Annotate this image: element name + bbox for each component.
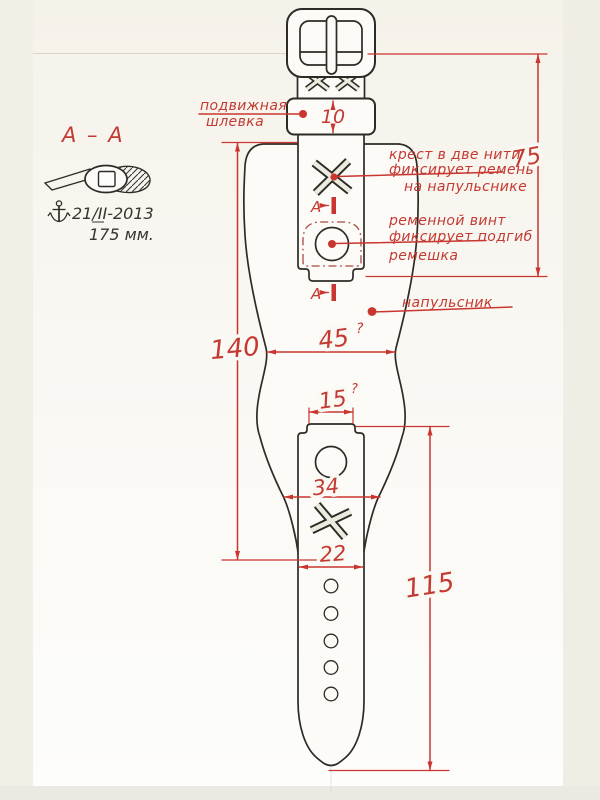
scan-edge-left bbox=[0, 0, 33, 800]
keeper-leader-dot bbox=[299, 110, 307, 118]
screw-note-line1: ременной винт bbox=[388, 213, 506, 229]
date-note: 21/II-2013 bbox=[72, 204, 154, 223]
section-cut-bar bbox=[332, 284, 337, 301]
section-title: А – А bbox=[60, 123, 125, 147]
section-cut-letter: A bbox=[310, 198, 321, 216]
drawing-canvas: 21/II-2013 175 мм. А – А 75 10 подвижная… bbox=[0, 0, 600, 800]
keeper-label-line1: подвижная bbox=[200, 98, 287, 114]
cross-note-line1: крест в две нити bbox=[389, 147, 521, 163]
keeper-label-line2: шлевка bbox=[206, 114, 264, 130]
scan-edge-right bbox=[563, 0, 600, 800]
dim-140: 140 bbox=[209, 332, 261, 366]
dim-10: 10 bbox=[321, 106, 345, 128]
watch-strap-technical-drawing: 21/II-2013 175 мм. А – А 75 10 подвижная… bbox=[0, 0, 600, 800]
cross-note-line2: фиксирует ремень bbox=[389, 162, 534, 178]
cuff-label-dot bbox=[368, 307, 377, 316]
dim-34: 34 bbox=[311, 474, 340, 501]
section-screw bbox=[99, 172, 116, 187]
dim-15: 15 bbox=[317, 386, 348, 415]
screw-note-line3: ремешка bbox=[388, 248, 458, 264]
dim-45: 45 bbox=[317, 323, 351, 355]
dim-15-mark: ? bbox=[351, 382, 358, 397]
cross-note-line3: на напульснике bbox=[404, 179, 527, 195]
section-cut-letter: A bbox=[310, 285, 321, 303]
screw-note-dot bbox=[328, 240, 336, 248]
dim-22: 22 bbox=[319, 541, 347, 567]
dim-45-mark: ? bbox=[356, 321, 364, 337]
buckle-prong bbox=[327, 16, 337, 74]
section-cut-bar bbox=[332, 197, 337, 214]
scan-edge-bottom bbox=[0, 786, 600, 800]
length-note: 175 мм. bbox=[89, 225, 154, 244]
cross-note-dot bbox=[330, 173, 337, 180]
